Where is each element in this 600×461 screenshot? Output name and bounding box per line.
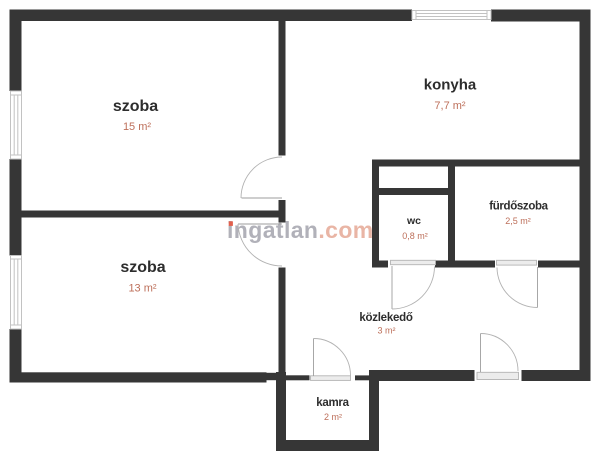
svg-text:közlekedő: közlekedő	[359, 312, 413, 324]
svg-text:15 m²: 15 m²	[123, 121, 151, 133]
svg-text:ingatlan.com: ingatlan.com	[227, 217, 374, 243]
svg-text:2,5 m²: 2,5 m²	[505, 216, 531, 226]
svg-text:7,7 m²: 7,7 m²	[434, 100, 466, 112]
svg-text:kamra: kamra	[316, 397, 349, 409]
svg-text:0,8 m²: 0,8 m²	[402, 231, 428, 241]
svg-text:szoba: szoba	[120, 259, 165, 276]
svg-text:3 m²: 3 m²	[378, 326, 396, 336]
svg-text:13 m²: 13 m²	[128, 283, 156, 295]
svg-text:wc: wc	[406, 215, 421, 227]
svg-text:fürdőszoba: fürdőszoba	[489, 201, 548, 213]
svg-text:szoba: szoba	[113, 98, 158, 115]
svg-text:2 m²: 2 m²	[324, 412, 342, 422]
svg-text:konyha: konyha	[424, 77, 477, 94]
